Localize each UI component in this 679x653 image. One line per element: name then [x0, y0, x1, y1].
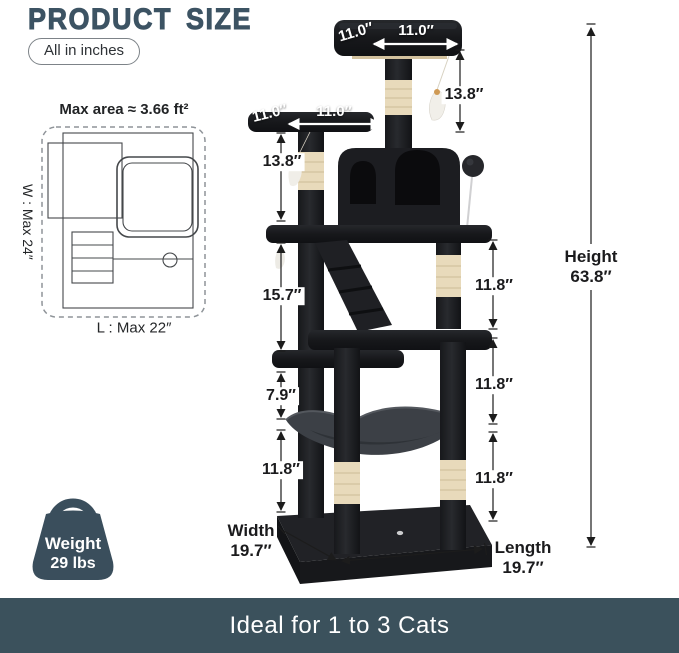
dim-below-platform: 7.9″: [263, 387, 299, 405]
dim-right-lower: 11.8″: [472, 470, 516, 488]
width-label: Width: [227, 521, 274, 541]
weight-label: Weight: [45, 534, 101, 554]
dim-right-upper: 11.8″: [472, 277, 516, 295]
height-value: 63.8″: [565, 267, 618, 287]
dim-right-middle: 11.8″: [472, 376, 516, 394]
length-label: Length: [495, 538, 552, 558]
max-area-caption: Max area ≈ 3.66 ft²: [59, 101, 188, 118]
dim-upper-post: 13.8″: [442, 86, 487, 104]
footprint-width-label: W : Max 24″: [20, 184, 36, 260]
footprint-diagram: [42, 127, 205, 317]
dim-side-post: 13.8″: [260, 153, 305, 171]
width-value: 19.7″: [227, 541, 274, 561]
height-dimension: Height 63.8″: [561, 246, 622, 288]
dim-side-perch-front: 11.0″: [316, 104, 352, 121]
dim-mid-section: 15.7″: [260, 287, 305, 305]
dim-top-perch-front: 11.0″: [398, 23, 434, 40]
page-title: PRODUCT SIZE: [28, 3, 252, 36]
height-label: Height: [565, 247, 618, 267]
weight-value: 29 lbs: [50, 555, 95, 573]
units-badge: All in inches: [28, 38, 140, 65]
length-value: 19.7″: [495, 558, 552, 578]
product-size-infographic: PRODUCT SIZE All in inches Max area ≈ 3.…: [0, 0, 679, 653]
width-dimension: Width 19.7″: [223, 520, 278, 562]
length-dimension: Length 19.7″: [491, 537, 556, 579]
footprint-length-label: L : Max 22″: [97, 320, 172, 337]
dim-lower-left: 11.8″: [259, 461, 303, 479]
footer-banner: Ideal for 1 to 3 Cats: [0, 598, 679, 653]
footer-text: Ideal for 1 to 3 Cats: [230, 612, 450, 640]
